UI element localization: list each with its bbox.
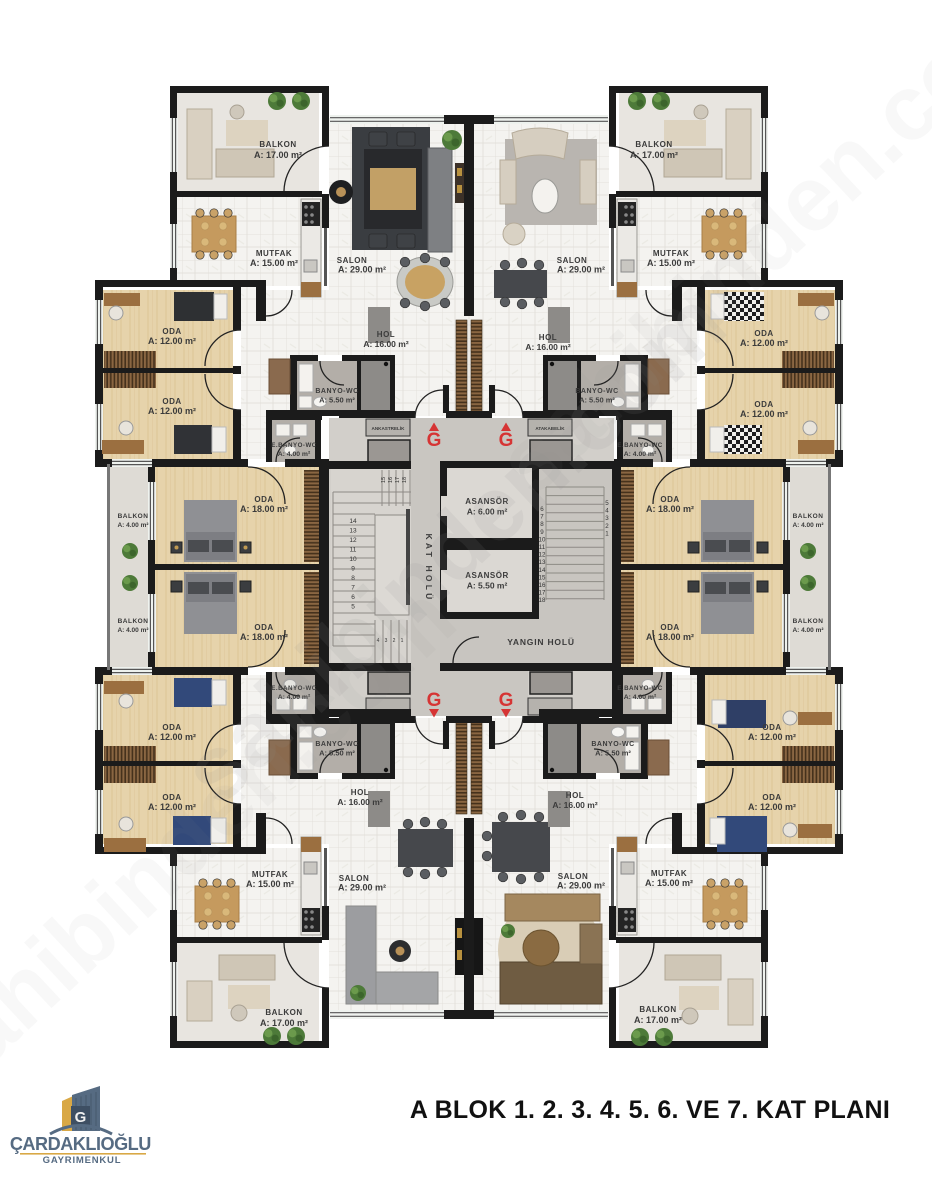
svg-text:A: 5.50 m²: A: 5.50 m²	[595, 749, 631, 758]
svg-text:A: 5.50 m²: A: 5.50 m²	[319, 396, 355, 405]
svg-text:HOL: HOL	[566, 791, 584, 800]
svg-text:A: 4.00 m²: A: 4.00 m²	[792, 522, 824, 529]
svg-text:13: 13	[349, 528, 357, 535]
svg-text:A: 12.00 m²: A: 12.00 m²	[748, 732, 796, 742]
svg-text:YANGIN HOLÜ: YANGIN HOLÜ	[507, 637, 575, 647]
svg-text:2: 2	[605, 523, 609, 530]
svg-text:A: 15.00 m²: A: 15.00 m²	[645, 878, 693, 888]
svg-text:ODA: ODA	[762, 723, 781, 732]
svg-text:GAYRIMENKUL: GAYRIMENKUL	[43, 1155, 122, 1166]
svg-text:G: G	[499, 690, 514, 711]
svg-text:A: 29.00 m²: A: 29.00 m²	[557, 881, 605, 891]
svg-text:12: 12	[539, 552, 546, 559]
svg-text:BALKON: BALKON	[793, 513, 824, 520]
svg-text:E.BANYO-WC: E.BANYO-WC	[271, 442, 317, 449]
svg-text:ODA: ODA	[660, 495, 679, 504]
svg-text:13: 13	[539, 559, 546, 566]
svg-text:ODA: ODA	[254, 623, 273, 632]
svg-text:4: 4	[605, 508, 609, 515]
svg-text:A: 29.00 m²: A: 29.00 m²	[338, 883, 386, 893]
svg-text:G: G	[427, 690, 442, 711]
svg-text:14: 14	[539, 567, 546, 574]
svg-text:A: 4.00 m²: A: 4.00 m²	[792, 627, 824, 634]
svg-text:10: 10	[539, 536, 546, 543]
svg-text:A: 4.00 m²: A: 4.00 m²	[117, 522, 149, 529]
svg-text:17: 17	[539, 590, 546, 597]
svg-text:MUTFAK: MUTFAK	[651, 869, 687, 878]
svg-text:A: 12.00 m²: A: 12.00 m²	[148, 406, 196, 416]
svg-text:5: 5	[605, 500, 609, 507]
svg-text:ODA: ODA	[754, 400, 773, 409]
svg-text:A: 16.00 m²: A: 16.00 m²	[337, 797, 383, 807]
svg-text:ODA: ODA	[162, 397, 181, 406]
svg-text:17: 17	[395, 477, 401, 483]
svg-text:15: 15	[381, 477, 387, 483]
svg-text:A BLOK 1. 2. 3. 4. 5. 6. VE 7.: A BLOK 1. 2. 3. 4. 5. 6. VE 7. KAT PLANI	[410, 1096, 890, 1124]
svg-text:ODA: ODA	[762, 793, 781, 802]
svg-text:A: 29.00 m²: A: 29.00 m²	[338, 265, 386, 275]
svg-text:14: 14	[349, 518, 357, 525]
svg-text:A: 15.00 m²: A: 15.00 m²	[246, 879, 294, 889]
svg-text:BALKON: BALKON	[265, 1008, 302, 1017]
svg-text:A: 4.00 m²: A: 4.00 m²	[278, 451, 311, 458]
svg-text:ODA: ODA	[162, 723, 181, 732]
svg-text:A: 18.00 m²: A: 18.00 m²	[646, 632, 694, 642]
svg-text:MUTFAK: MUTFAK	[252, 870, 288, 879]
svg-text:ODA: ODA	[754, 329, 773, 338]
svg-text:E.BANYO-WC: E.BANYO-WC	[617, 685, 663, 692]
svg-text:A: 17.00 m²: A: 17.00 m²	[630, 150, 678, 160]
svg-text:A: 16.00 m²: A: 16.00 m²	[552, 800, 598, 810]
svg-text:G: G	[427, 430, 442, 451]
svg-text:ODA: ODA	[660, 623, 679, 632]
svg-text:BALKON: BALKON	[259, 140, 296, 149]
svg-text:ODA: ODA	[254, 495, 273, 504]
svg-text:A: 17.00 m²: A: 17.00 m²	[634, 1015, 682, 1025]
svg-text:A: 29.00 m²: A: 29.00 m²	[557, 265, 605, 275]
svg-text:A: 12.00 m²: A: 12.00 m²	[748, 802, 796, 812]
svg-text:BALKON: BALKON	[793, 618, 824, 625]
svg-text:10: 10	[349, 556, 357, 563]
svg-text:A: 17.00 m²: A: 17.00 m²	[254, 150, 302, 160]
svg-text:A: 4.00 m²: A: 4.00 m²	[624, 694, 657, 701]
svg-text:A: 15.00 m²: A: 15.00 m²	[250, 258, 298, 268]
svg-text:HOL: HOL	[351, 788, 369, 797]
svg-text:BALKON: BALKON	[118, 618, 149, 625]
svg-text:HOL: HOL	[377, 330, 395, 339]
svg-text:11: 11	[539, 544, 546, 551]
svg-text:A: 12.00 m²: A: 12.00 m²	[740, 409, 788, 419]
svg-text:BALKON: BALKON	[118, 513, 149, 520]
svg-text:A: 18.00 m²: A: 18.00 m²	[646, 504, 694, 514]
svg-text:MUTFAK: MUTFAK	[256, 249, 292, 258]
svg-text:A: 4.00 m²: A: 4.00 m²	[117, 627, 149, 634]
svg-text:A: 12.00 m²: A: 12.00 m²	[148, 336, 196, 346]
svg-text:A: 17.00 m²: A: 17.00 m²	[260, 1018, 308, 1028]
svg-text:A: 12.00 m²: A: 12.00 m²	[740, 338, 788, 348]
svg-text:18: 18	[539, 597, 546, 604]
svg-text:HOL: HOL	[539, 333, 557, 342]
svg-text:ODA: ODA	[162, 327, 181, 336]
svg-text:1: 1	[605, 530, 609, 537]
svg-text:18: 18	[402, 477, 408, 483]
svg-text:16: 16	[539, 582, 546, 589]
svg-text:11: 11	[350, 547, 357, 554]
svg-text:BANYO-WC: BANYO-WC	[591, 741, 634, 748]
svg-text:12: 12	[349, 537, 357, 544]
svg-text:ÇARDAKLIOĞLU: ÇARDAKLIOĞLU	[10, 1133, 151, 1154]
svg-text:3: 3	[605, 515, 609, 522]
svg-text:ANKASTRELİK: ANKASTRELİK	[372, 425, 406, 431]
svg-text:G: G	[75, 1109, 87, 1126]
svg-text:A: 16.00 m²: A: 16.00 m²	[363, 339, 409, 349]
svg-text:BALKON: BALKON	[635, 140, 672, 149]
svg-text:A: 16.00 m²: A: 16.00 m²	[525, 342, 571, 352]
svg-text:A: 18.00 m²: A: 18.00 m²	[240, 504, 288, 514]
svg-text:BALKON: BALKON	[639, 1005, 676, 1014]
svg-text:15: 15	[539, 574, 546, 581]
svg-text:BANYO-WC: BANYO-WC	[315, 388, 358, 395]
svg-text:16: 16	[388, 477, 394, 483]
